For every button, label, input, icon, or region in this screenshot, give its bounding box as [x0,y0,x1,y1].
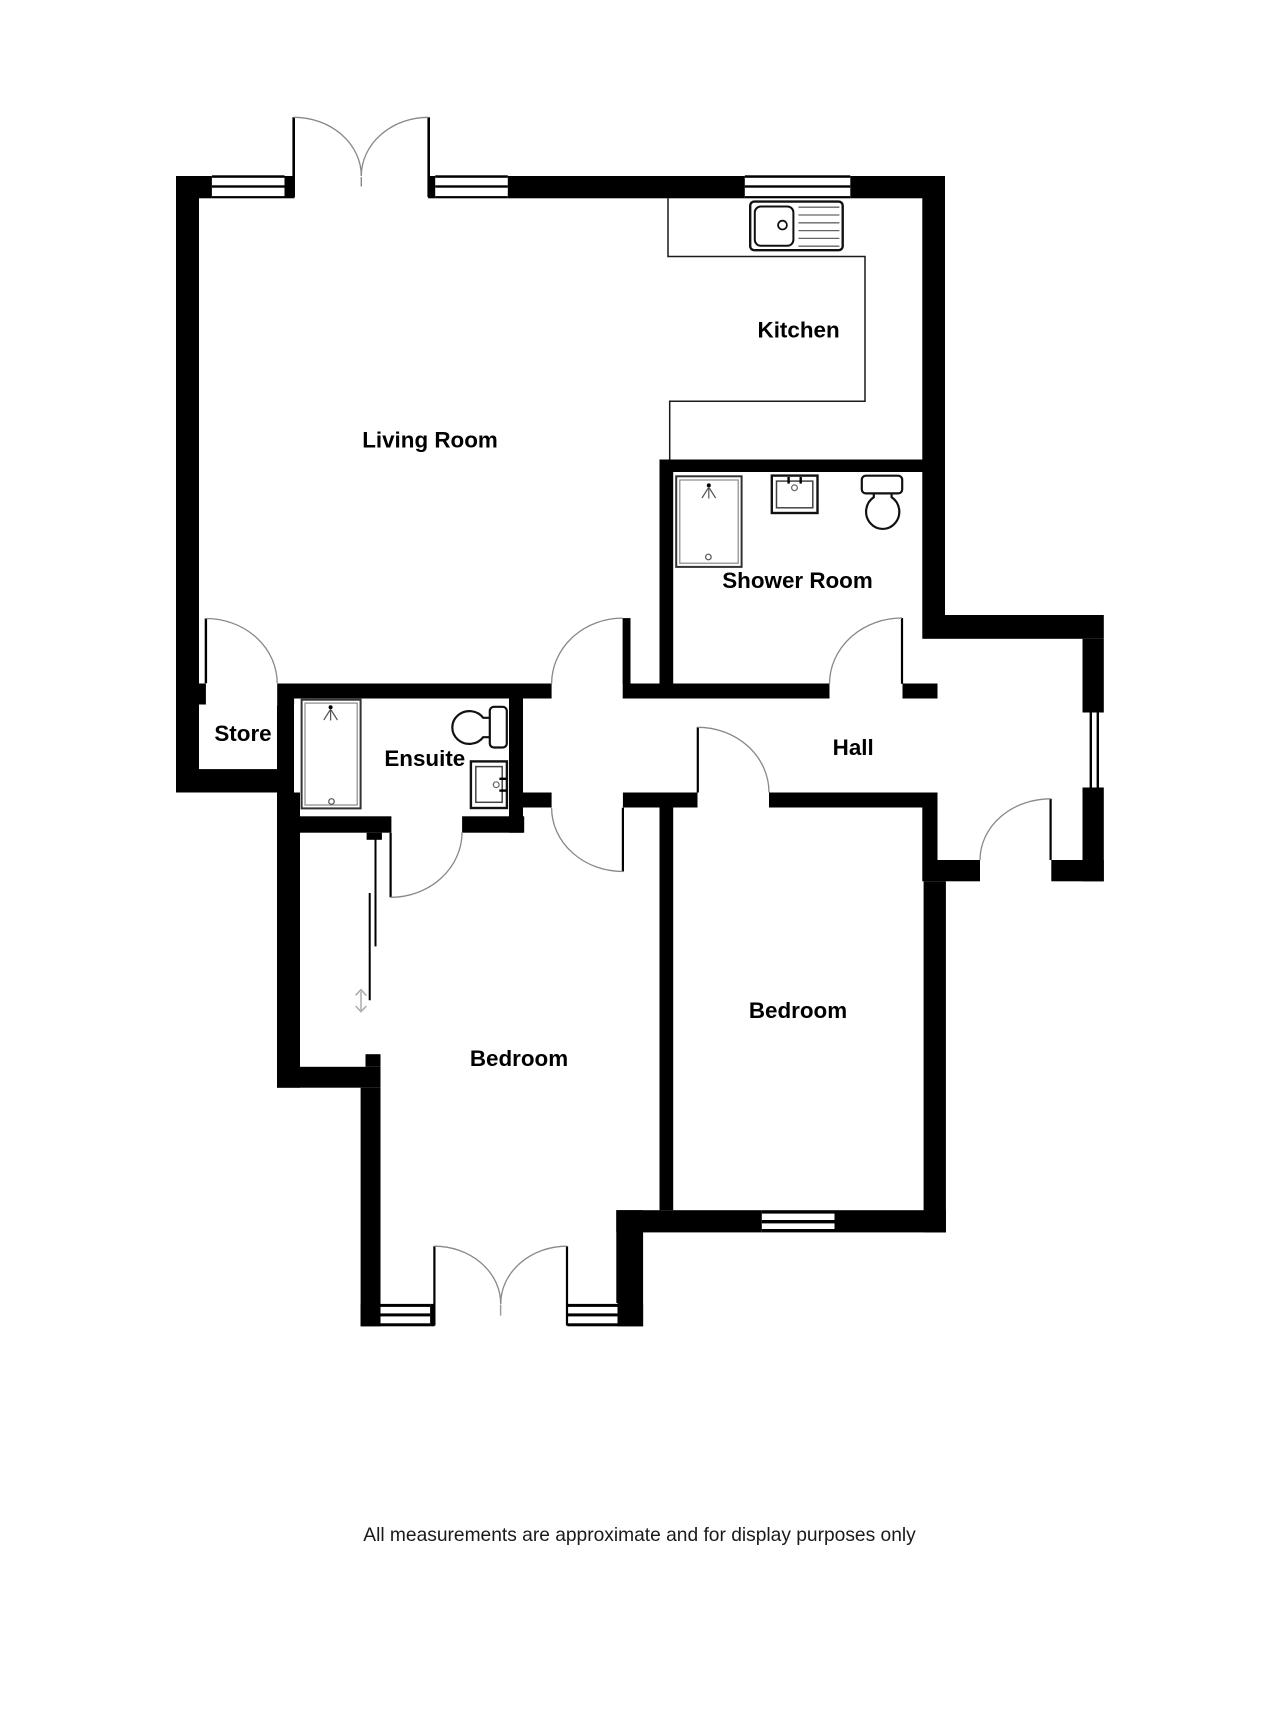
svg-text:Living Room: Living Room [362,427,498,452]
svg-text:Ensuite: Ensuite [384,746,465,771]
svg-text:Kitchen: Kitchen [758,317,840,342]
svg-text:Hall: Hall [833,735,874,760]
svg-text:Store: Store [214,721,271,746]
svg-text:All measurements are approxima: All measurements are approximate and for… [363,1525,916,1546]
svg-text:Shower Room: Shower Room [722,568,873,593]
svg-text:Bedroom: Bedroom [470,1046,568,1071]
svg-text:Bedroom: Bedroom [749,998,847,1023]
